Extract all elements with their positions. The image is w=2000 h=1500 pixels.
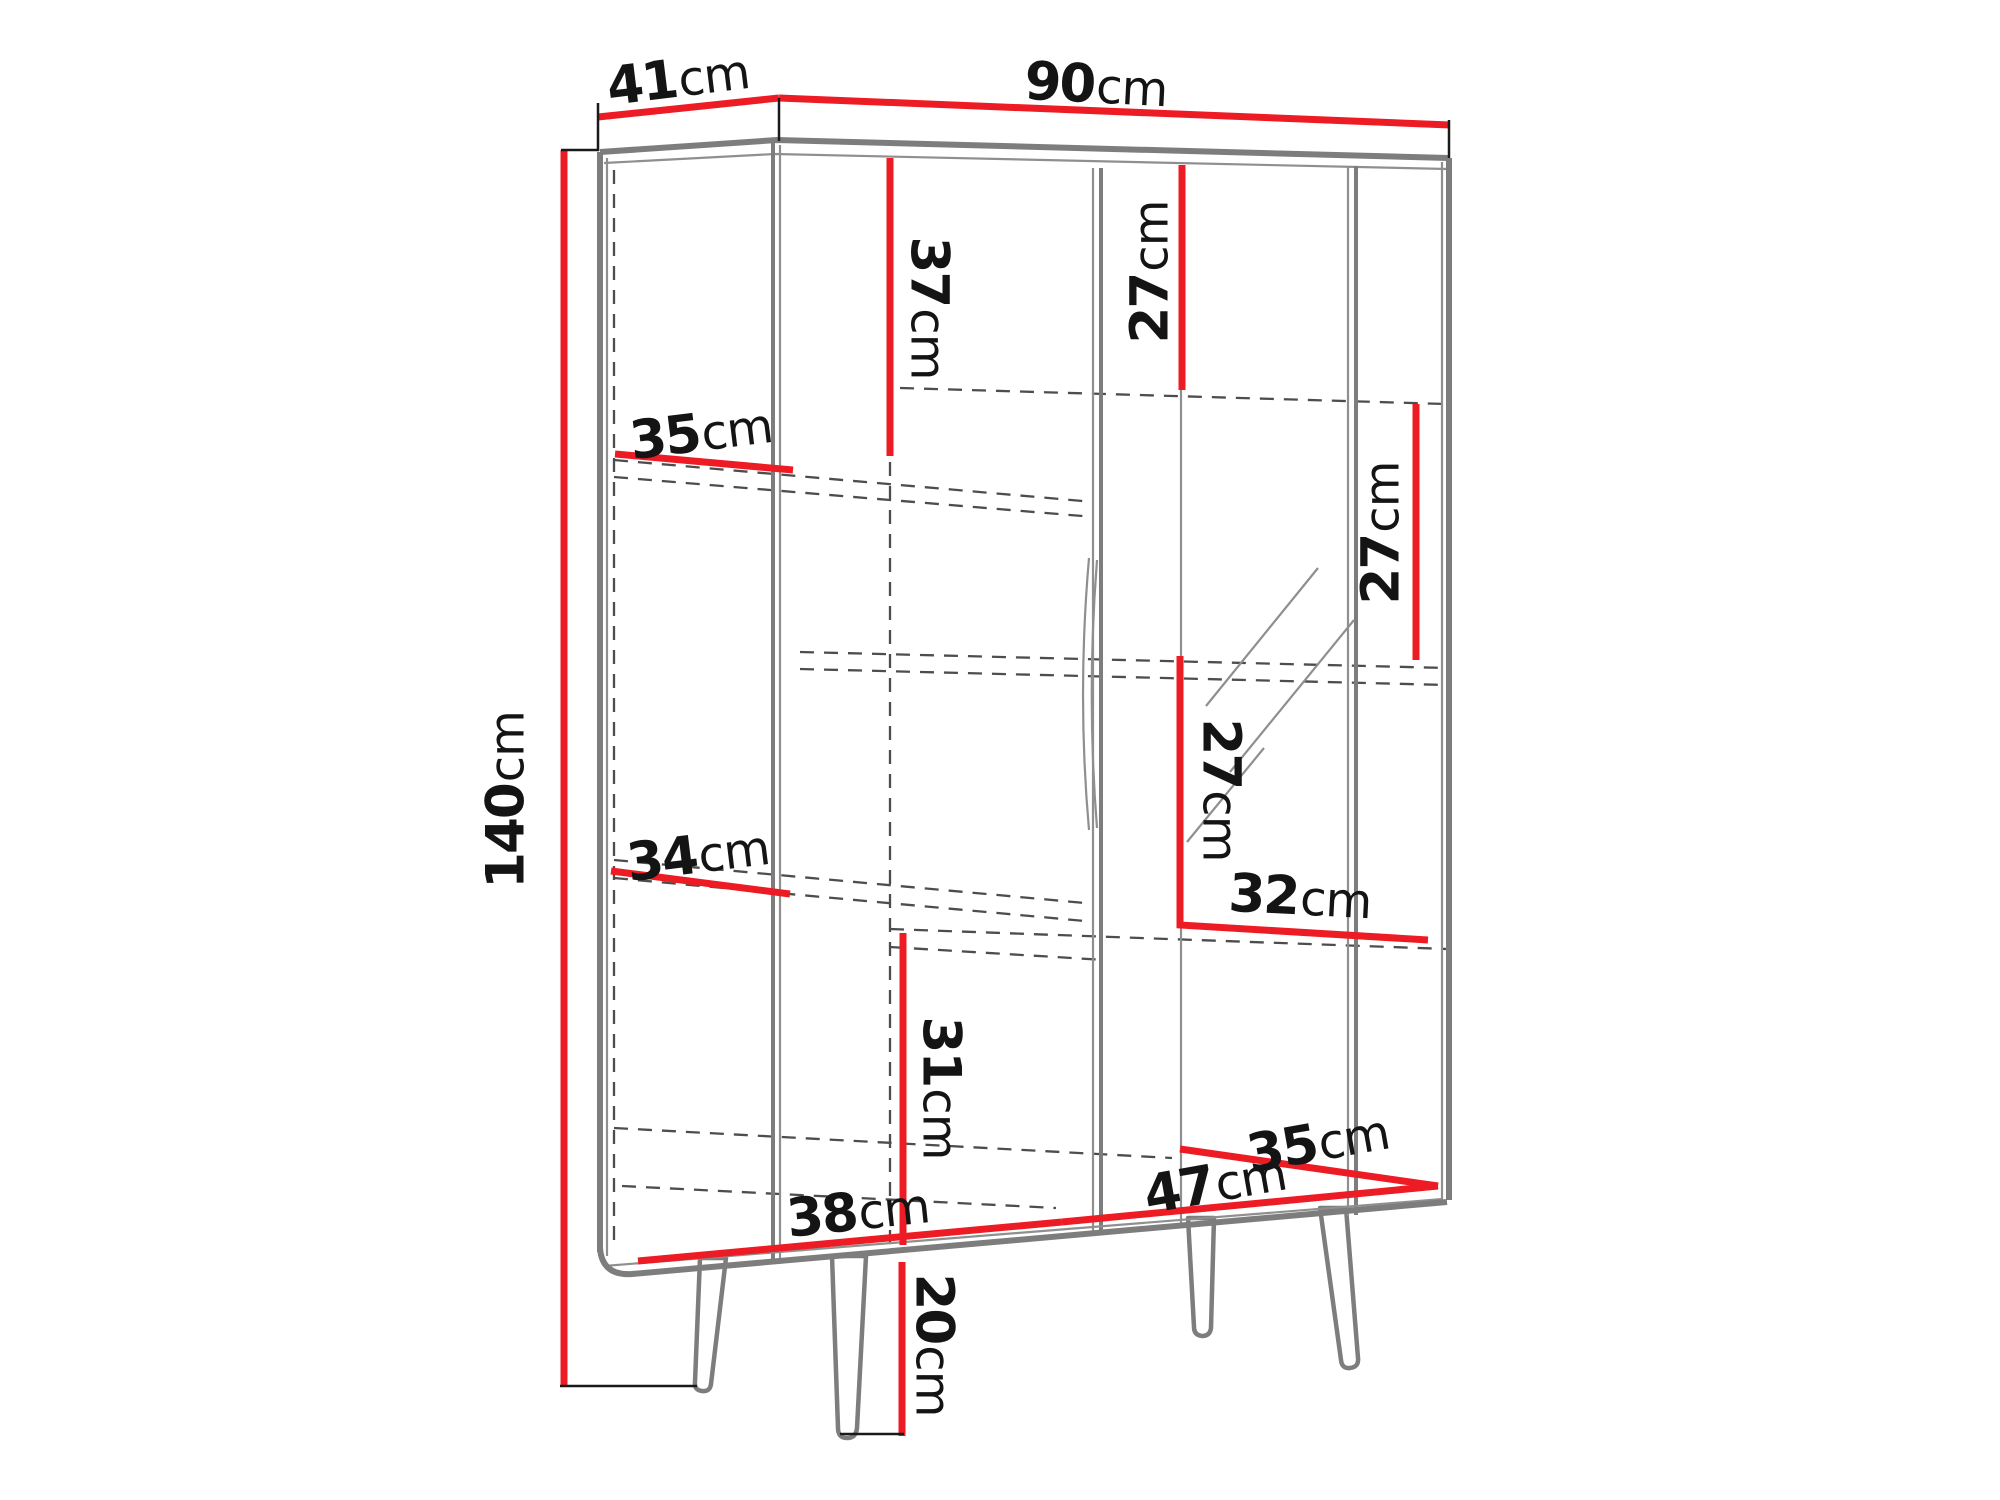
dim-label-height: 140cm xyxy=(476,711,537,889)
dimension-lines xyxy=(564,98,1450,1436)
handle-groove-outer xyxy=(1083,558,1089,830)
hidden-shelf-right-lower-b xyxy=(890,947,1105,960)
cabinet-line-drawing xyxy=(0,0,2000,1500)
hidden-edges xyxy=(614,170,1447,1244)
dim-label-20: 20cm xyxy=(904,1274,965,1417)
dim-label-27-middle: 27cm xyxy=(1191,719,1252,862)
leg-back-left xyxy=(695,1258,726,1391)
dim-label-width-top: 90cm xyxy=(1023,51,1169,119)
hidden-shelf-left-upper-b xyxy=(614,477,1094,517)
leg-back-right xyxy=(1188,1218,1214,1336)
leg-front-right xyxy=(1320,1208,1358,1368)
dim-label-27-top: 27cm xyxy=(1120,201,1181,344)
dimension-diagram: 41cm 90cm 140cm 37cm 27cm 27cm 27cm 35cm… xyxy=(0,0,2000,1500)
hidden-bottom-shelf xyxy=(614,1128,1172,1158)
hidden-shelf-middle-a xyxy=(800,652,1447,668)
dim-label-31: 31cm xyxy=(911,1017,972,1160)
hidden-shelf-right-top xyxy=(900,388,1446,404)
hidden-shelf-left-upper-a xyxy=(614,460,1094,502)
dim-label-27-right: 27cm xyxy=(1351,462,1412,605)
top-face-edge xyxy=(600,140,1449,158)
leg-front-left xyxy=(832,1256,866,1438)
hidden-shelf-middle-b xyxy=(800,669,1447,685)
bottom-outer-edge xyxy=(600,1202,1447,1274)
cabinet-outline xyxy=(600,140,1449,1274)
dim-label-32: 32cm xyxy=(1227,863,1373,931)
dim-label-37: 37cm xyxy=(899,237,960,380)
